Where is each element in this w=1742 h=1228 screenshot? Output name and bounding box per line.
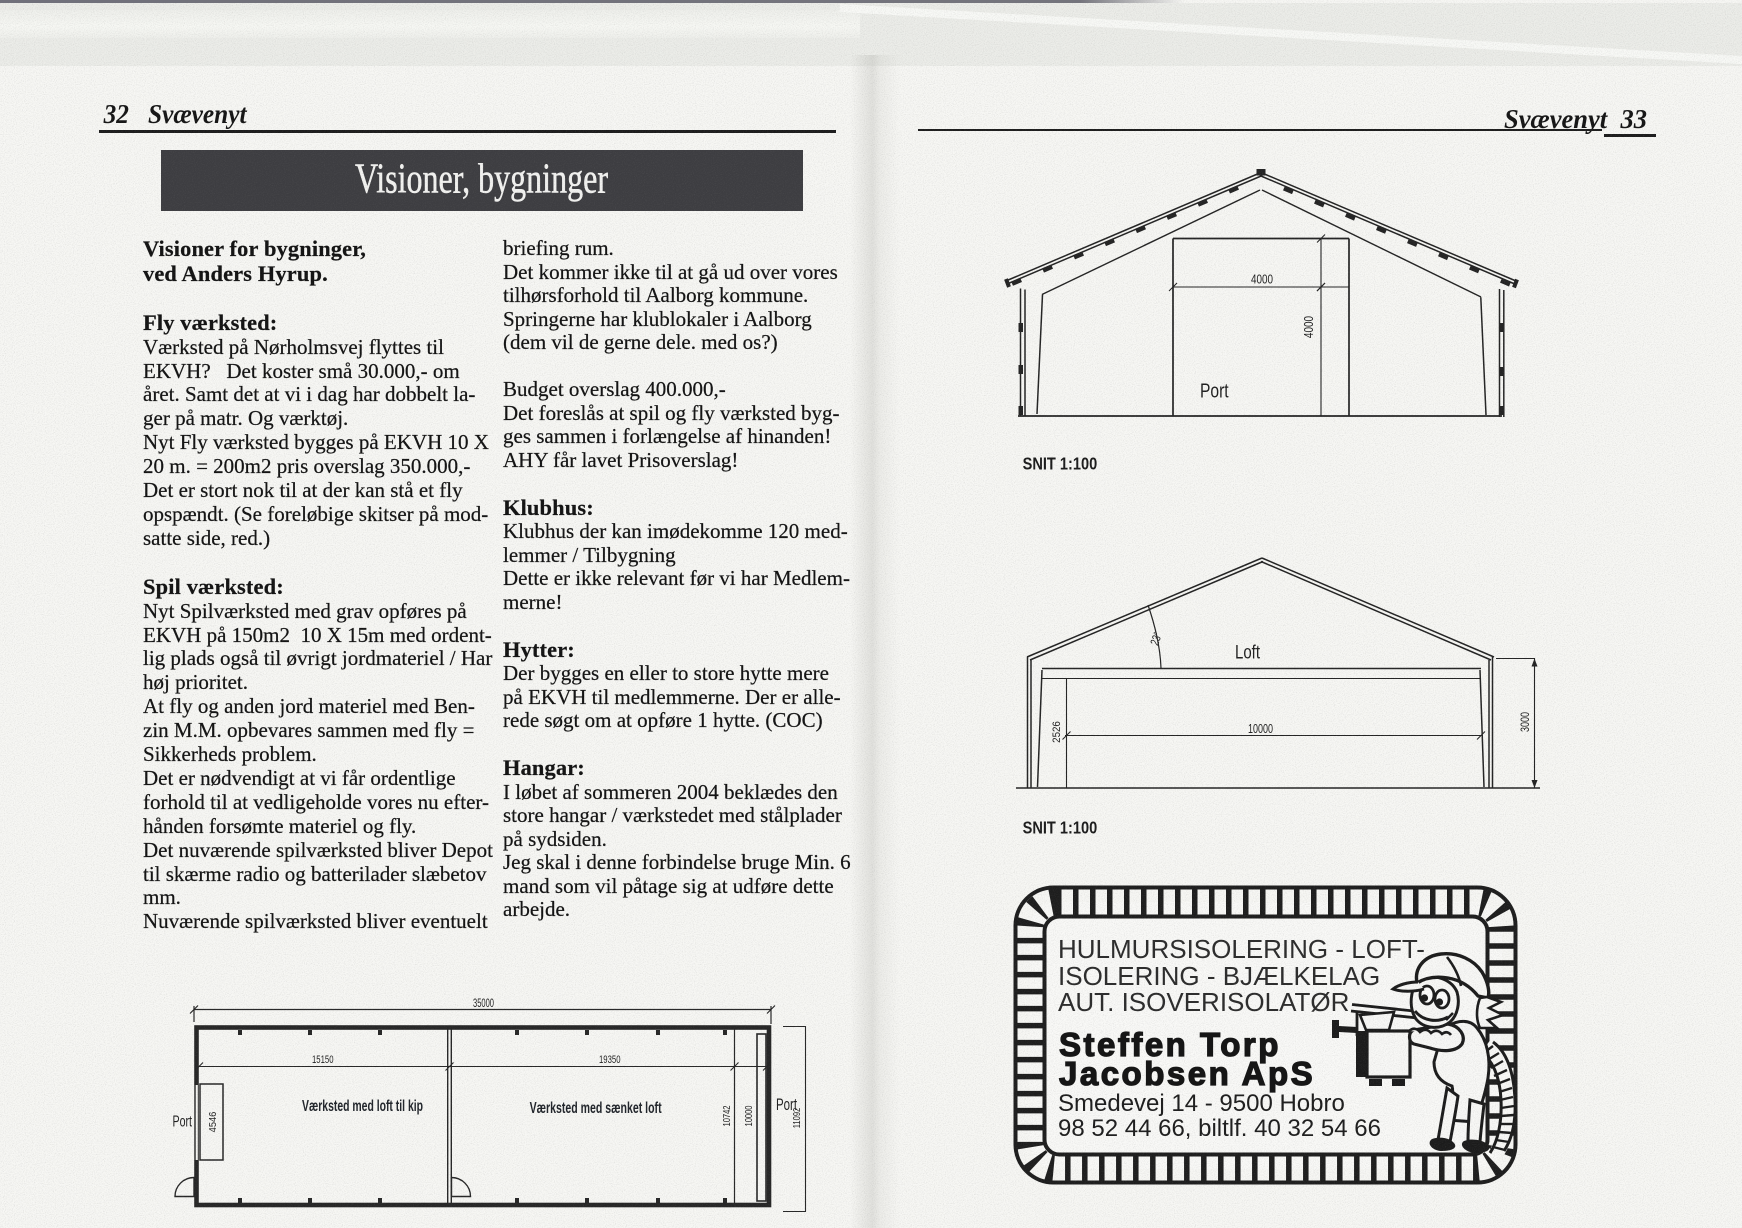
svg-text:10000: 10000 [743, 1105, 755, 1126]
svg-text:10742: 10742 [721, 1105, 733, 1126]
svg-text:23°: 23° [1147, 630, 1165, 647]
svg-text:3000: 3000 [1518, 712, 1532, 732]
svg-text:Værksted med loft til kip: Værksted med loft til kip [302, 1098, 423, 1115]
svg-text:SNIT 1:100: SNIT 1:100 [1023, 454, 1098, 474]
svg-text:4000: 4000 [1301, 316, 1316, 338]
svg-text:SNIT 1:100: SNIT 1:100 [1023, 818, 1098, 838]
svg-text:4546: 4546 [208, 1111, 219, 1132]
svg-text:15150: 15150 [312, 1054, 334, 1066]
svg-text:Port: Port [173, 1114, 193, 1131]
svg-text:35000: 35000 [473, 996, 494, 1010]
svg-text:Værksted med sænket loft: Værksted med sænket loft [530, 1100, 662, 1117]
svg-text:Loft: Loft [1235, 643, 1261, 664]
svg-text:2526: 2526 [1051, 721, 1063, 743]
svg-text:10000: 10000 [1248, 721, 1273, 736]
svg-text:19350: 19350 [599, 1054, 621, 1066]
svg-text:4000: 4000 [1251, 272, 1273, 287]
svg-text:Port: Port [1200, 381, 1229, 403]
svg-text:Port: Port [776, 1095, 797, 1114]
